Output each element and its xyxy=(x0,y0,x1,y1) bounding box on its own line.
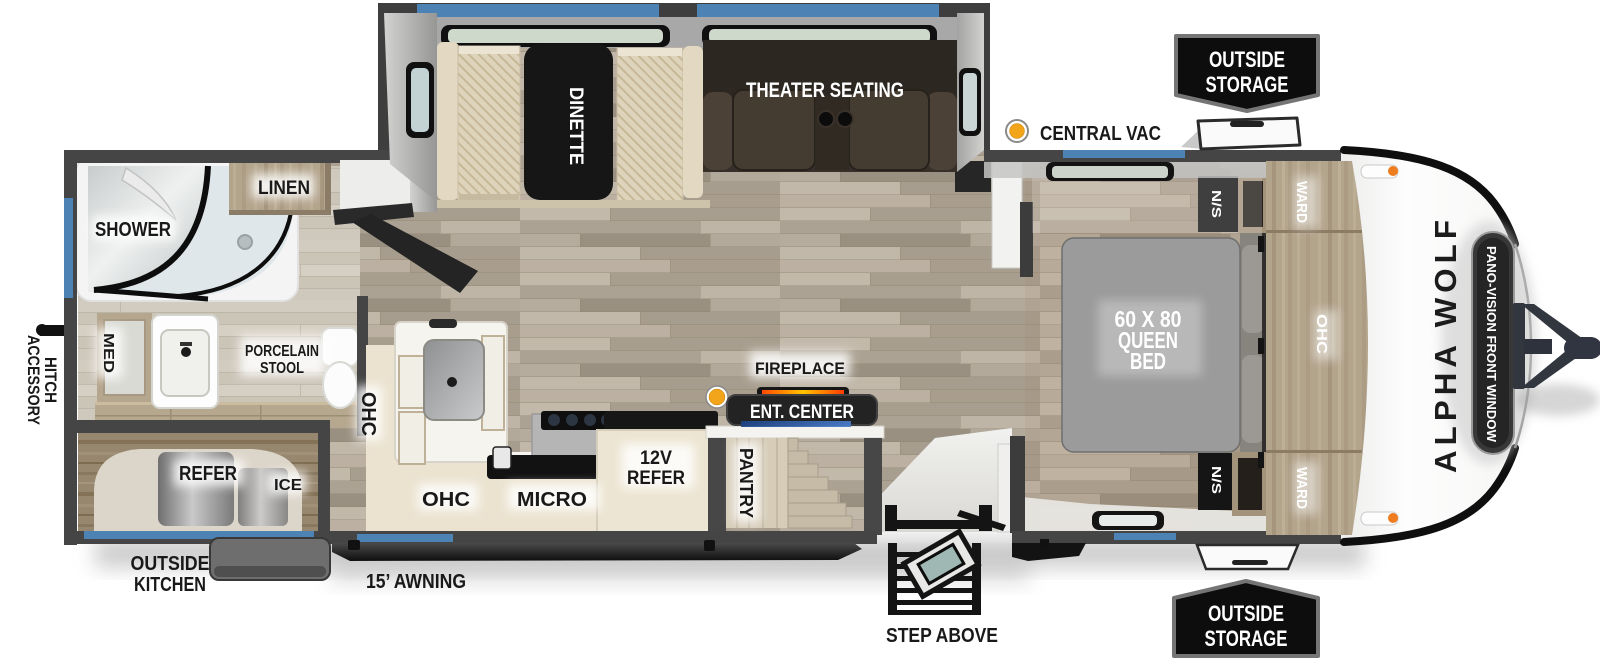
svg-text:ENT. CENTER: ENT. CENTER xyxy=(750,402,854,423)
svg-text:LINEN: LINEN xyxy=(258,178,310,199)
svg-text:MED: MED xyxy=(100,333,117,373)
svg-text:ICE: ICE xyxy=(274,477,302,494)
svg-text:OHC: OHC xyxy=(357,392,379,436)
svg-text:N/S: N/S xyxy=(1209,190,1224,218)
svg-text:CENTRAL VAC: CENTRAL VAC xyxy=(1040,123,1161,145)
svg-text:BED: BED xyxy=(1130,348,1166,374)
svg-text:OHC: OHC xyxy=(422,489,470,511)
svg-text:N/S: N/S xyxy=(1209,466,1224,494)
svg-text:STEP ABOVE: STEP ABOVE xyxy=(886,625,998,647)
svg-text:STOOL: STOOL xyxy=(260,360,304,377)
svg-text:REFER: REFER xyxy=(627,468,685,489)
svg-text:OUTSIDE: OUTSIDE xyxy=(1208,601,1284,626)
svg-text:OHC: OHC xyxy=(1313,314,1330,354)
svg-text:ALPHA WOLF: ALPHA WOLF xyxy=(1428,215,1463,473)
svg-text:REFER: REFER xyxy=(179,463,237,485)
svg-text:WARD: WARD xyxy=(1293,181,1310,223)
svg-text:STORAGE: STORAGE xyxy=(1206,72,1289,97)
svg-text:OUTSIDE: OUTSIDE xyxy=(131,553,210,575)
svg-text:OUTSIDE: OUTSIDE xyxy=(1209,47,1285,72)
svg-text:THEATER SEATING: THEATER SEATING xyxy=(746,79,904,102)
svg-text:KITCHEN: KITCHEN xyxy=(134,574,206,596)
svg-text:SHOWER: SHOWER xyxy=(95,219,171,241)
svg-text:DINETTE: DINETTE xyxy=(565,87,586,165)
svg-text:ACCESSORY: ACCESSORY xyxy=(24,335,43,426)
svg-text:WARD: WARD xyxy=(1293,467,1310,509)
svg-text:PANTRY: PANTRY xyxy=(736,448,756,518)
svg-text:15’ AWNING: 15’ AWNING xyxy=(366,571,466,593)
svg-text:PANO-VISION FRONT WINDOW: PANO-VISION FRONT WINDOW xyxy=(1484,246,1499,443)
svg-text:MICRO: MICRO xyxy=(517,489,587,511)
svg-text:STORAGE: STORAGE xyxy=(1205,626,1288,651)
svg-text:PORCELAIN: PORCELAIN xyxy=(245,343,319,360)
svg-text:HITCH: HITCH xyxy=(41,357,60,403)
svg-text:12V: 12V xyxy=(640,448,672,469)
svg-text:FIREPLACE: FIREPLACE xyxy=(755,359,845,378)
